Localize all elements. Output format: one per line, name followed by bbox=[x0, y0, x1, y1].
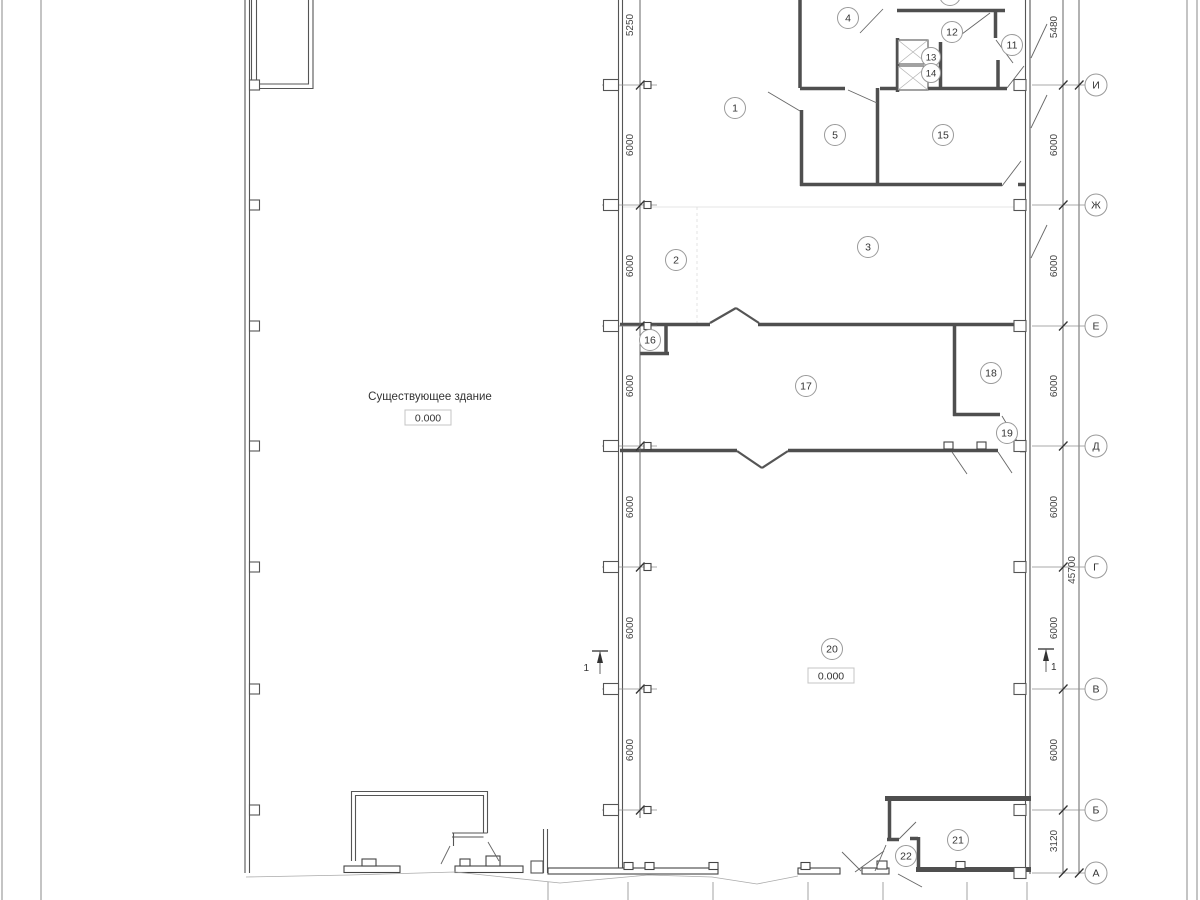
axis-label: Б bbox=[1093, 805, 1100, 817]
room-number-label: 12 bbox=[946, 27, 958, 39]
room-number-label: 15 bbox=[937, 130, 949, 142]
door-swing-lines bbox=[441, 9, 1047, 887]
dimension-label: 6000 bbox=[1049, 616, 1060, 639]
dimension-label: 5480 bbox=[1049, 15, 1060, 38]
room-number-label: 13 bbox=[926, 53, 937, 64]
dimension-label: 3120 bbox=[1049, 829, 1060, 852]
axis-label: А bbox=[1092, 868, 1099, 880]
room-circle bbox=[940, 0, 961, 6]
dimension-label: 6000 bbox=[1049, 133, 1060, 156]
dimension-label: 5250 bbox=[625, 13, 636, 36]
existing-building-outline bbox=[245, 0, 623, 873]
room-bubbles: 1 2 3 4 5 11 12 13 14 15 16 17 18 19 20 … bbox=[640, 0, 1023, 867]
axis-label: Е bbox=[1092, 321, 1099, 333]
room-number-label: 14 bbox=[926, 69, 937, 80]
dimension-label: 6000 bbox=[625, 133, 636, 156]
axis-bubbles: И Ж Е Д Г В Б А bbox=[1085, 74, 1107, 884]
dimension-label: 6000 bbox=[625, 738, 636, 761]
dimension-label: 6000 bbox=[1049, 374, 1060, 397]
dimension-label: 6000 bbox=[1049, 495, 1060, 518]
axis-label: Ж bbox=[1091, 200, 1101, 212]
dimension-label: 6000 bbox=[625, 616, 636, 639]
left-dimension-line: 5250 6000 6000 6000 6000 6000 6000 bbox=[602, 0, 657, 818]
existing-building-label: Существующее здание bbox=[368, 391, 492, 403]
overall-dimension-label: 45700 bbox=[1067, 556, 1078, 584]
dimension-label: 6000 bbox=[1049, 254, 1060, 277]
dimension-label: 6000 bbox=[1049, 738, 1060, 761]
floor-plan-canvas: 5250 6000 6000 6000 6000 6000 6000 5480 … bbox=[0, 0, 1200, 900]
text-annotations: Существующее здание 0.000 0.000 bbox=[368, 391, 854, 683]
right-dimension-lines: 5480 6000 6000 6000 6000 6000 6000 3120 … bbox=[1014, 0, 1085, 879]
room-number-label: 11 bbox=[1007, 40, 1018, 52]
dimension-label: 6000 bbox=[625, 374, 636, 397]
room-number-label: 3 bbox=[865, 242, 871, 254]
room-number-label: 16 bbox=[644, 335, 656, 347]
axis-label: И bbox=[1092, 80, 1100, 92]
shaft-hatching bbox=[898, 40, 928, 90]
elevation-label: 0.000 bbox=[415, 413, 441, 425]
room-number-label: 4 bbox=[845, 13, 851, 25]
room-number-label: 22 bbox=[900, 851, 912, 863]
room-number-label: 5 bbox=[832, 130, 838, 142]
new-building-walls bbox=[548, 0, 1031, 874]
ground-break-line bbox=[246, 872, 1027, 900]
room-number-label: 17 bbox=[800, 381, 812, 393]
axis-label: Д bbox=[1092, 441, 1099, 453]
dimension-label: 6000 bbox=[625, 495, 636, 518]
room-number-label: 2 bbox=[673, 255, 679, 267]
axis-label: Г bbox=[1093, 562, 1099, 574]
axis-label: В bbox=[1092, 684, 1099, 696]
room-number-label: 18 bbox=[985, 368, 997, 380]
drawing-sheet: 5250 6000 6000 6000 6000 6000 6000 5480 … bbox=[0, 0, 1200, 900]
section-label: 1 bbox=[583, 663, 589, 674]
room-number-label: 21 bbox=[952, 835, 964, 847]
room-number-label: 20 bbox=[826, 644, 838, 656]
dimension-label: 6000 bbox=[625, 254, 636, 277]
section-label: 1 bbox=[1051, 662, 1057, 673]
room-number-label: 1 bbox=[732, 103, 738, 115]
elevation-label: 0.000 bbox=[818, 671, 844, 683]
room-number-label: 19 bbox=[1001, 428, 1013, 440]
